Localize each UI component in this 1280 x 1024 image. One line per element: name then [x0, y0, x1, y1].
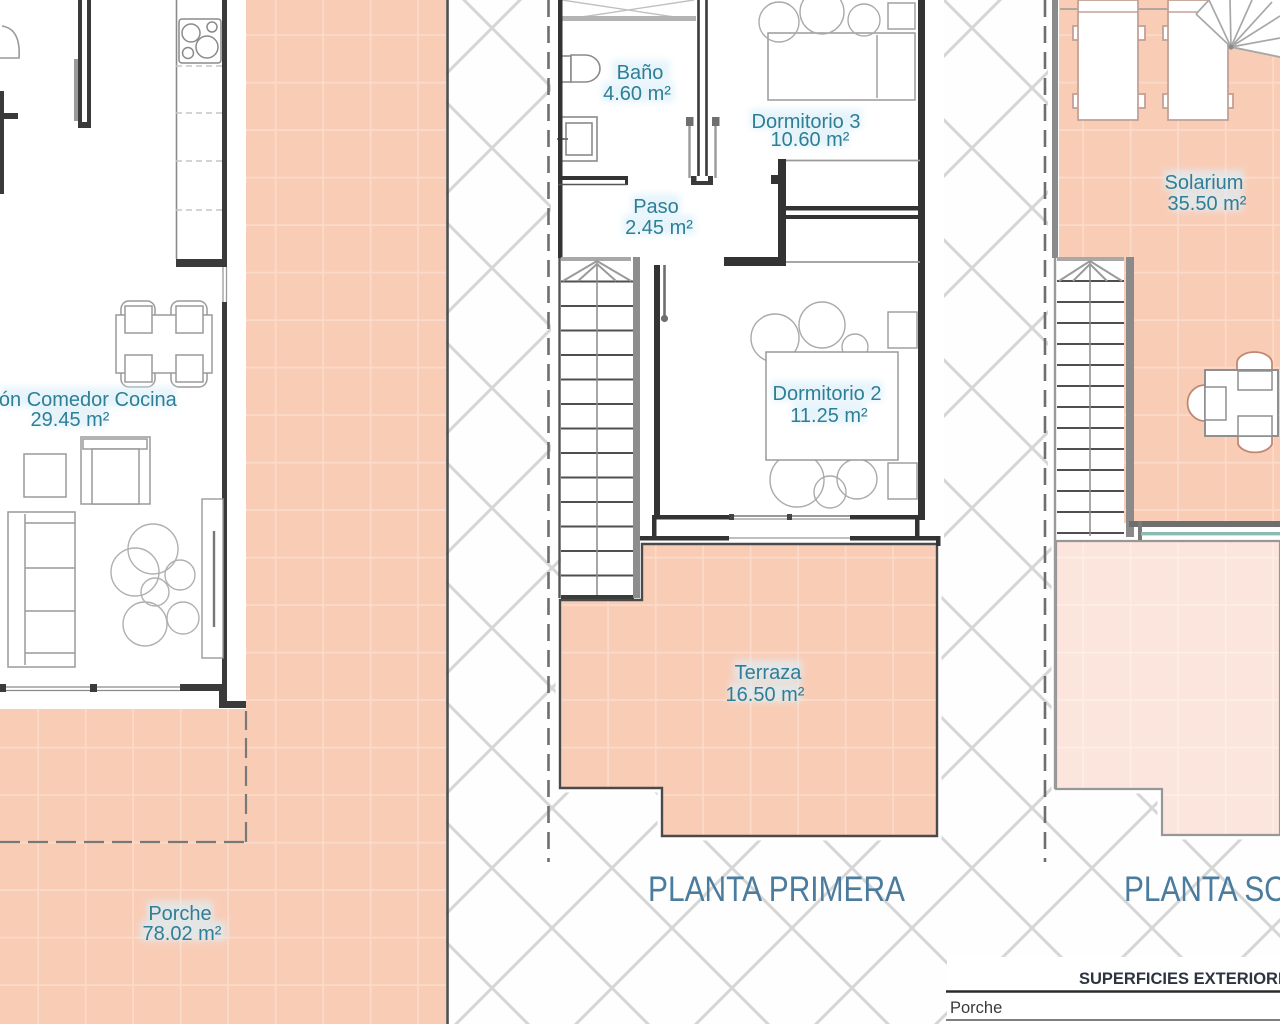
- svg-text:Porche: Porche: [148, 903, 211, 925]
- svg-text:4.60 m²: 4.60 m²: [603, 83, 671, 105]
- svg-text:Terraza: Terraza: [735, 662, 803, 684]
- svg-text:29.45 m²: 29.45 m²: [31, 409, 110, 431]
- svg-text:10.60 m²: 10.60 m²: [771, 129, 850, 151]
- svg-text:Baño: Baño: [617, 62, 664, 84]
- svg-text:PLANTA PRIMERA: PLANTA PRIMERA: [648, 869, 905, 909]
- svg-text:Dormitorio 2: Dormitorio 2: [773, 383, 882, 405]
- svg-text:35.50 m²: 35.50 m²: [1168, 193, 1247, 215]
- svg-text:11.25 m²: 11.25 m²: [790, 405, 868, 427]
- svg-text:PLANTA SOLARIUM: PLANTA SOLARIUM: [1124, 869, 1280, 909]
- svg-text:Porche: Porche: [950, 999, 1002, 1017]
- svg-text:2.45 m²: 2.45 m²: [625, 217, 693, 239]
- svg-text:78.02 m²: 78.02 m²: [143, 923, 222, 945]
- svg-text:Salón Comedor Cocina: Salón Comedor Cocina: [0, 389, 178, 411]
- svg-text:Solarium: Solarium: [1165, 172, 1244, 194]
- svg-text:SUPERFICIES EXTERIORES: SUPERFICIES EXTERIORES: [1079, 970, 1280, 988]
- svg-text:Paso: Paso: [633, 196, 679, 218]
- svg-text:16.50 m²: 16.50 m²: [726, 684, 805, 706]
